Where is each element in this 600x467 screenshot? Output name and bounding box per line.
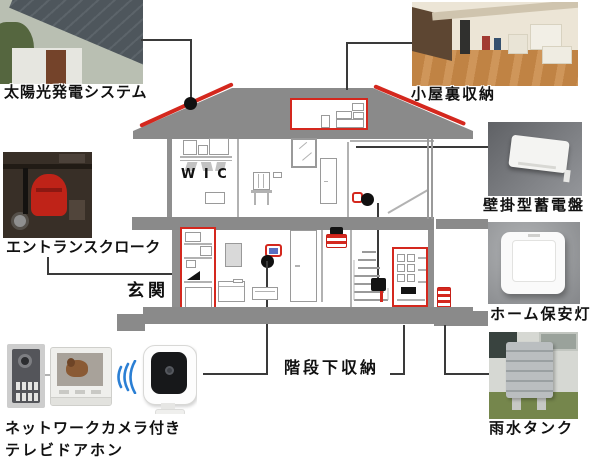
- attic-box-shape: [353, 112, 364, 119]
- wall-1f-mid1: [321, 230, 323, 302]
- doorbell-camera-lens-icon: [18, 354, 32, 368]
- stair-footlight-tick: [380, 291, 383, 302]
- pantry-black-item: [401, 287, 416, 294]
- attic-label: 小屋裏収納: [411, 86, 496, 103]
- under-stairs-label: 階段下収納: [284, 359, 379, 377]
- wheel-shape: [11, 212, 29, 230]
- battery-connector-h: [356, 146, 488, 148]
- wic-shelf-line: [180, 156, 232, 158]
- stored-item-shape: [482, 36, 490, 50]
- shelf-shape: [3, 164, 92, 169]
- camera-base-shape: [155, 409, 185, 414]
- solar-marker-dot: [184, 97, 197, 110]
- stored-box-shape: [542, 46, 572, 64]
- attic-connector-h: [346, 42, 412, 44]
- monitor-screen-shape: [57, 353, 103, 386]
- wic-label: W I C: [181, 168, 229, 183]
- battery-photo: [488, 122, 582, 196]
- attic-ceiling-edge: [432, 2, 578, 21]
- wall-2f-mid: [347, 142, 349, 217]
- chair-slat: [258, 174, 259, 188]
- tv-doorphone-label: テレビドアホン: [5, 442, 124, 459]
- porch-roof: [436, 219, 488, 229]
- cloak-box-shape: [185, 232, 201, 242]
- pantry-cell: [407, 254, 415, 262]
- pantry-cell: [407, 264, 415, 272]
- doorbell-button: [16, 393, 20, 401]
- wic-shelf-box: [183, 140, 197, 155]
- solar-connector-h: [141, 39, 192, 41]
- glass-glint: [302, 152, 312, 160]
- dog-ear-shape: [67, 358, 75, 367]
- solar-roof-photo: [0, 0, 143, 84]
- wic-shelf-line: [180, 160, 232, 161]
- chair-leg: [254, 193, 256, 205]
- security-light-label: ホーム保安灯: [490, 306, 592, 323]
- window-2f: [291, 138, 317, 168]
- rain-tank-photo: [489, 332, 578, 419]
- battery-marker-dot: [361, 193, 374, 206]
- attic-photo: [412, 2, 578, 86]
- security-light-photo: [488, 222, 580, 304]
- door-shape: [46, 50, 66, 84]
- pantry-shelf-line: [418, 257, 426, 259]
- doorphone-screen-shape: [269, 248, 278, 254]
- basin-top-line: [219, 286, 244, 287]
- foundation-right: [434, 311, 488, 326]
- doorbell-button: [28, 393, 32, 401]
- foundation-main: [143, 307, 473, 324]
- basin-sink: [233, 279, 243, 283]
- wic-shelf-box: [198, 145, 208, 155]
- monitor-button: [91, 390, 101, 394]
- monitor-base-shape: [51, 397, 111, 406]
- chair-back-shape: [253, 172, 270, 190]
- doorbell-button: [34, 393, 38, 401]
- pantry-shelf-line: [418, 281, 426, 283]
- monitor-photo: [50, 347, 112, 406]
- doorbell-button: [22, 382, 26, 390]
- cloak-shelf-line: [184, 257, 212, 259]
- pantry-cell: [397, 274, 405, 282]
- floor-slab-2f: [132, 217, 434, 230]
- attic-box-shape: [321, 115, 330, 128]
- bag-strap-shape: [36, 188, 62, 192]
- red-bag-shape: [31, 174, 67, 216]
- doorphone-connector-h: [203, 373, 268, 375]
- downspout: [427, 139, 433, 219]
- cloak-box-shape: [200, 246, 212, 256]
- bench-shape: [252, 287, 278, 300]
- house-feature-diagram: 太陽光発電システム 小屋裏収納 エントランスクローク 玄関: [0, 0, 600, 467]
- entrance-cloak-photo: [3, 152, 92, 238]
- monitor-button: [75, 390, 85, 394]
- stair-footlight-box: [371, 278, 386, 291]
- doorbell-unit-photo: [7, 344, 45, 408]
- battery-bracket-shape: [563, 170, 570, 183]
- stair-2f-diagonal: [388, 189, 429, 214]
- cloak-cabinet-shape: [185, 287, 212, 309]
- wall-2f-left: [167, 139, 172, 217]
- entrance-cloak-label: エントランスクローク: [6, 239, 161, 256]
- cloak-shelf-line: [184, 243, 212, 245]
- stored-box-shape: [508, 34, 528, 54]
- chair-leg: [267, 193, 269, 205]
- network-camera-photo: [141, 344, 197, 414]
- tank-body-shape: [506, 342, 553, 398]
- attic-storage-outline: [290, 98, 368, 130]
- solar-label: 太陽光発電システム: [4, 84, 148, 101]
- wall-1f-left: [172, 230, 180, 308]
- pole-shape: [23, 168, 28, 214]
- pantry-cell: [397, 264, 405, 272]
- bench-line: [255, 291, 275, 292]
- pantry-cell: [407, 274, 415, 282]
- camera-lens-icon: [165, 366, 174, 375]
- doorbell-button: [22, 393, 26, 401]
- security-light-slot: [528, 234, 540, 237]
- cloak-black-item: [187, 271, 200, 280]
- security-light-panel-shape: [512, 240, 556, 282]
- pantry-cell: [397, 254, 405, 262]
- wic-shelf-box: [209, 138, 229, 155]
- door-handle: [295, 265, 300, 267]
- doorbell-button: [28, 382, 32, 390]
- rain-tank-connector-h: [444, 373, 490, 375]
- attic-box-shape: [336, 111, 352, 119]
- wifi-icon: [113, 360, 143, 394]
- stored-item-shape: [494, 38, 501, 50]
- dresser-shape: [205, 192, 225, 204]
- wall-2f-wic: [237, 139, 239, 217]
- rain-tank-connector-v: [444, 325, 446, 375]
- doorbell-button: [16, 382, 20, 390]
- porch-light-marker: [437, 287, 451, 309]
- washbasin-shape: [218, 281, 245, 302]
- monitor-button: [59, 390, 69, 394]
- attic-box-shape: [352, 103, 364, 111]
- pantry-shelf-line: [397, 299, 425, 301]
- under-stairs-connector-v: [403, 325, 405, 375]
- cloak-shelf-line: [184, 281, 212, 283]
- entrance-cloak-outline: [180, 227, 216, 311]
- door-1f: [290, 230, 317, 302]
- battery-label: 壁掛型蓄電盤: [483, 197, 585, 214]
- shelf-item-shape: [59, 154, 85, 163]
- network-camera-label: ネットワークカメラ付き: [5, 420, 181, 437]
- door-2f: [320, 158, 337, 204]
- stored-item-shape: [69, 200, 85, 220]
- under-stairs-outline: [392, 247, 428, 307]
- glass-glint: [299, 142, 307, 149]
- battery-unit-shape: [508, 135, 569, 174]
- stored-item-shape: [460, 20, 470, 54]
- mirror-shape: [225, 243, 242, 267]
- attic-connector-v: [346, 42, 348, 90]
- solar-connector-v: [190, 39, 192, 101]
- attic-box-shape: [336, 119, 364, 128]
- cloak-box-shape: [186, 260, 196, 268]
- foundation-left: [117, 314, 145, 331]
- door-handle: [324, 181, 328, 182]
- wall-1f-right: [428, 230, 434, 310]
- entrance-label: 玄関: [127, 282, 169, 302]
- hall-light-marker: [326, 234, 347, 248]
- stairs-shape: [352, 248, 392, 304]
- ceiling-2f-right: [350, 140, 434, 142]
- chair-slat: [263, 174, 264, 188]
- rain-tank-label: 雨水タンク: [489, 420, 574, 437]
- wall-item-shape: [273, 172, 282, 178]
- cloak-connector-h: [47, 273, 181, 275]
- pantry-shelf-line: [418, 269, 426, 271]
- doorbell-button: [34, 382, 38, 390]
